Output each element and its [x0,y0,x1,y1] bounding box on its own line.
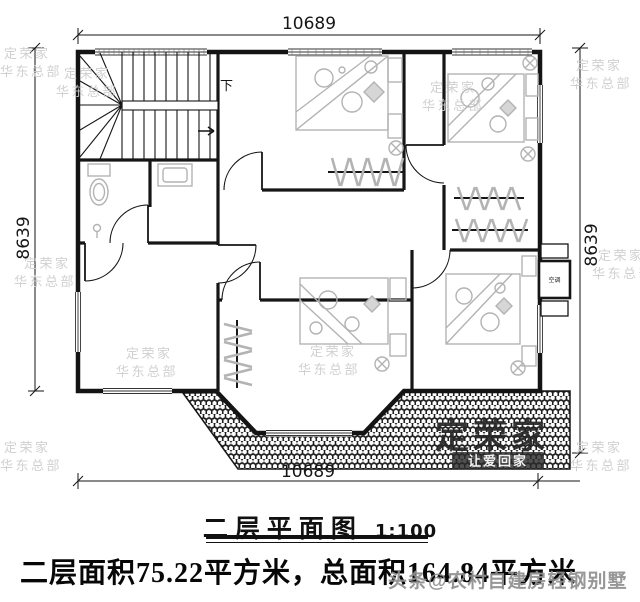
svg-text:定荣家: 定荣家 [64,66,111,82]
title-underline-thick [206,535,428,539]
svg-text:定荣家: 定荣家 [126,346,173,362]
svg-text:华东总部: 华东总部 [298,363,360,378]
svg-text:华东总部: 华东总部 [56,85,118,100]
svg-text:定荣家: 定荣家 [576,440,623,456]
svg-text:华东总部: 华东总部 [570,459,632,474]
social-watermark: 头条@农村自建房轻钢别墅 [388,566,628,593]
svg-text:定荣家: 定荣家 [310,344,357,360]
svg-text:华东总部: 华东总部 [570,77,632,92]
svg-text:定荣家: 定荣家 [4,440,51,456]
roof-slogan-text: 让爱回家 [468,454,528,470]
svg-text:华东总部: 华东总部 [14,275,76,290]
title-underline-thin [206,542,428,543]
ac-unit-label: 空调 [548,276,560,284]
svg-text:定荣家: 定荣家 [4,46,51,62]
dim-bottom: 10689 [281,462,335,482]
svg-text:华东总部: 华东总部 [592,267,640,282]
svg-text:华东总部: 华东总部 [116,365,178,380]
page: { "plan": { "dim_top": "10689", "dim_bot… [0,0,640,602]
floor-plan-svg: 下 [0,0,640,505]
dim-top: 10689 [282,14,336,34]
roof-brand-text: 定荣家 [435,417,549,457]
svg-text:定荣家: 定荣家 [24,256,71,272]
roof-watermark: 定荣家 让爱回家 [435,417,549,470]
drawing-title-row: 二层平面图1:100 [0,509,640,545]
svg-text:定荣家: 定荣家 [576,58,623,74]
svg-text:华东总部: 华东总部 [422,99,484,114]
svg-text:华东总部: 华东总部 [0,459,62,474]
svg-text:定荣家: 定荣家 [430,80,477,96]
svg-text:定荣家: 定荣家 [598,248,640,264]
svg-text:华东总部: 华东总部 [0,65,62,80]
floor-plan: 下 [0,0,640,505]
dim-left: 8639 [14,216,34,259]
stairs-down-label: 下 [220,79,233,94]
